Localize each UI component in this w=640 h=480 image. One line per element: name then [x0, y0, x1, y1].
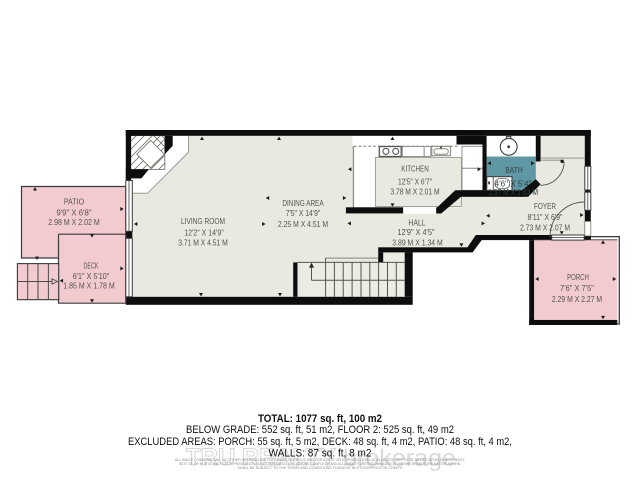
- svg-text:EXCLUDED AREAS: PORCH: 55 sq.: EXCLUDED AREAS: PORCH: 55 sq. ft, 5 m2, …: [128, 436, 512, 448]
- svg-text:2.98 M X 2.02 M: 2.98 M X 2.02 M: [48, 218, 100, 227]
- svg-text:3.71 M X 4.51 M: 3.71 M X 4.51 M: [178, 239, 228, 248]
- svg-text:HALL: HALL: [408, 219, 426, 228]
- svg-text:12'5" X 6'7": 12'5" X 6'7": [398, 178, 432, 187]
- svg-text:DINING AREA: DINING AREA: [282, 199, 324, 208]
- svg-text:6'1" X 5'10": 6'1" X 5'10": [73, 272, 110, 281]
- svg-text:1.37 M X 1.63 M: 1.37 M X 1.63 M: [488, 188, 538, 197]
- svg-text:PORCH: PORCH: [567, 273, 589, 282]
- svg-text:8'11" X 6'9": 8'11" X 6'9": [528, 213, 563, 222]
- svg-text:KITCHEN: KITCHEN: [401, 165, 428, 174]
- svg-text:1.85 M X 1.78 M: 1.85 M X 1.78 M: [63, 282, 115, 291]
- svg-text:3.89 M X 1.34 M: 3.89 M X 1.34 M: [392, 239, 443, 248]
- svg-text:TOTAL: 1077 sq. ft, 100 m2: TOTAL: 1077 sq. ft, 100 m2: [258, 413, 382, 425]
- svg-text:SHALL BE SUBJECT TO THE TERMS: SHALL BE SUBJECT TO THE TERMS AND CONDIT…: [238, 466, 404, 470]
- svg-text:2.73 M X 2.07 M: 2.73 M X 2.07 M: [520, 224, 570, 233]
- svg-text:12'9" X 4'5": 12'9" X 4'5": [397, 228, 434, 237]
- svg-text:BELOW GRADE: 552 sq. ft, 51 m2: BELOW GRADE: 552 sq. ft, 51 m2, FLOOR 2:…: [186, 424, 454, 436]
- svg-text:7'6" X 7'5": 7'6" X 7'5": [560, 284, 594, 293]
- svg-text:2.25 M X 4.51 M: 2.25 M X 4.51 M: [278, 220, 328, 229]
- svg-text:7'5" X 14'9": 7'5" X 14'9": [286, 209, 321, 218]
- svg-text:LIVING ROOM: LIVING ROOM: [181, 217, 225, 226]
- svg-text:3.78 M X 2.01 M: 3.78 M X 2.01 M: [390, 188, 439, 197]
- svg-text:BATH: BATH: [505, 166, 522, 175]
- svg-text:FOYER: FOYER: [534, 202, 556, 211]
- svg-text:12'2" X 14'9": 12'2" X 14'9": [184, 228, 223, 237]
- svg-text:2.29 M X 2.27 M: 2.29 M X 2.27 M: [552, 295, 602, 304]
- svg-text:PATIO: PATIO: [64, 198, 84, 207]
- svg-text:9'9" X 6'8": 9'9" X 6'8": [56, 208, 91, 217]
- svg-text:DECK: DECK: [84, 261, 99, 270]
